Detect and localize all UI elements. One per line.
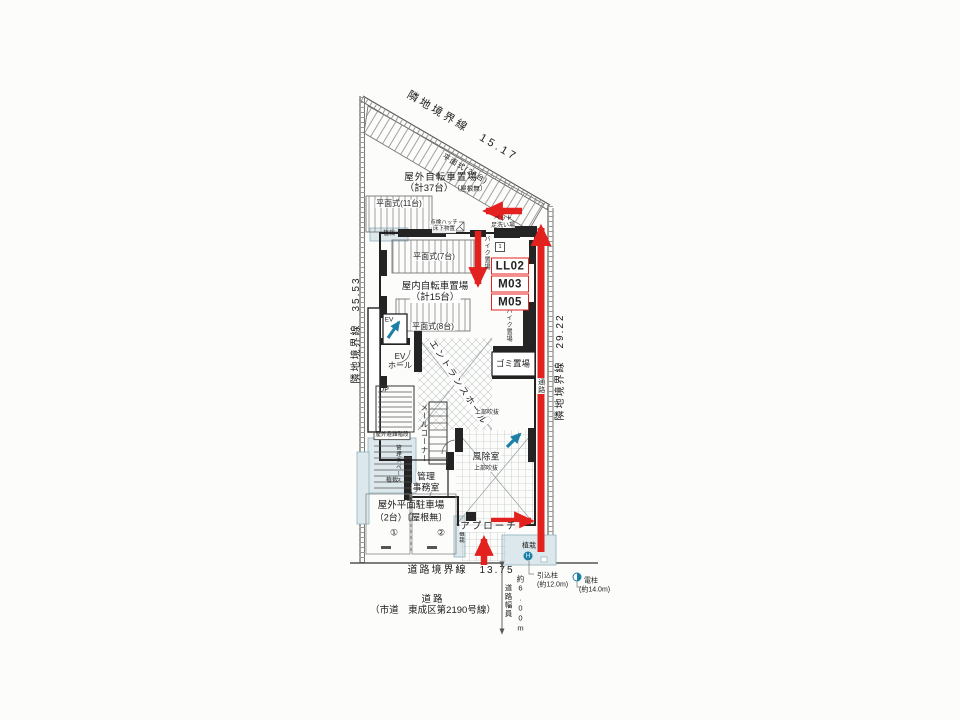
office-line2: 事務室	[411, 483, 440, 492]
outdoor-parking-title: 屋外平面駐車場	[378, 501, 445, 511]
service-pole-h-marker: H	[524, 552, 533, 561]
utility-pole-height: (約14.0m)	[579, 586, 610, 593]
indoor-bicycle-count: （計15台）	[410, 293, 461, 303]
road-name-line1: 道路	[421, 595, 444, 605]
flat8-label: 平面式(8台)	[411, 323, 455, 331]
parking-stall-1: ①	[390, 528, 398, 537]
road-boundary-label: 道路境界線 13.75	[407, 566, 514, 577]
road-name-line2: （市道 東成区第2190号線）	[370, 606, 496, 616]
void-lower-label: 上部吹抜	[473, 466, 499, 472]
planting-label-southeast: 植栽	[522, 542, 536, 549]
door-arc	[442, 440, 456, 454]
unit-box-ll02[interactable]: LL02	[491, 258, 529, 275]
corridor-label: 通路	[537, 378, 544, 394]
up-label: UP	[379, 386, 389, 393]
road-width-value: 約6.00m	[516, 575, 524, 634]
boundary-right-label: 隣地境界線 29.22	[556, 313, 567, 420]
service-pole-label: 引込柱	[537, 572, 558, 579]
garbage-room-label: ゴミ置場	[496, 360, 530, 369]
elevator-label: EV	[385, 318, 394, 325]
planting-label-stair: 植栽	[386, 478, 398, 484]
parking-stall-2: ②	[437, 528, 445, 537]
outdoor-bicycle-title: 屋外自転車置場	[404, 173, 478, 183]
void-upper-label: 上部吹抜	[474, 410, 500, 416]
outdoor-bicycle-count: （計37台）	[405, 184, 454, 194]
indoor-bicycle-title: 屋内自転車置場	[401, 282, 470, 292]
number-chip-1: 1	[495, 242, 505, 252]
flat11-label: 平面式(11台)	[375, 200, 423, 208]
pet-wash-line2: 足洗い場	[491, 223, 515, 229]
unit-box-m03[interactable]: M03	[491, 276, 529, 293]
windbreak-label: 風除室	[471, 452, 500, 461]
approach-label: アプローチ	[459, 522, 519, 532]
ev-hall-line2: ホール	[388, 362, 412, 370]
escape-stair-label: 屋外避難階段	[373, 432, 410, 440]
boundary-left-label: 隣地境界線 35.53	[352, 276, 363, 383]
utility-pole-label: 電柱	[584, 577, 598, 584]
site-plan-page: 隣地境界線 15.17 平面式(26台) 屋外自転車置場 （計37台） 〔屋根無…	[0, 0, 960, 720]
pet-wash-line1: ペット	[494, 216, 512, 222]
mail-corner-label: メールコーナー	[420, 403, 428, 463]
unit-box-m05[interactable]: M05	[491, 294, 529, 311]
bike-area-label: バイク置場	[483, 236, 489, 271]
service-pole-height: (約12.0m)	[537, 581, 568, 588]
hatch-note-line2: 床下物置	[432, 227, 456, 233]
planting-label-strip: 植栽	[457, 531, 463, 544]
planting-label-top: 植栽	[383, 231, 395, 237]
flat7-label: 平面式(7台)	[412, 253, 456, 261]
outdoor-bicycle-roof-note: 〔屋根無〕	[454, 187, 487, 194]
outdoor-parking-count: （2台）〔屋根無〕	[375, 513, 448, 522]
office-line1: 管理	[416, 472, 436, 481]
road-width-label: 道路幅員	[504, 584, 512, 618]
